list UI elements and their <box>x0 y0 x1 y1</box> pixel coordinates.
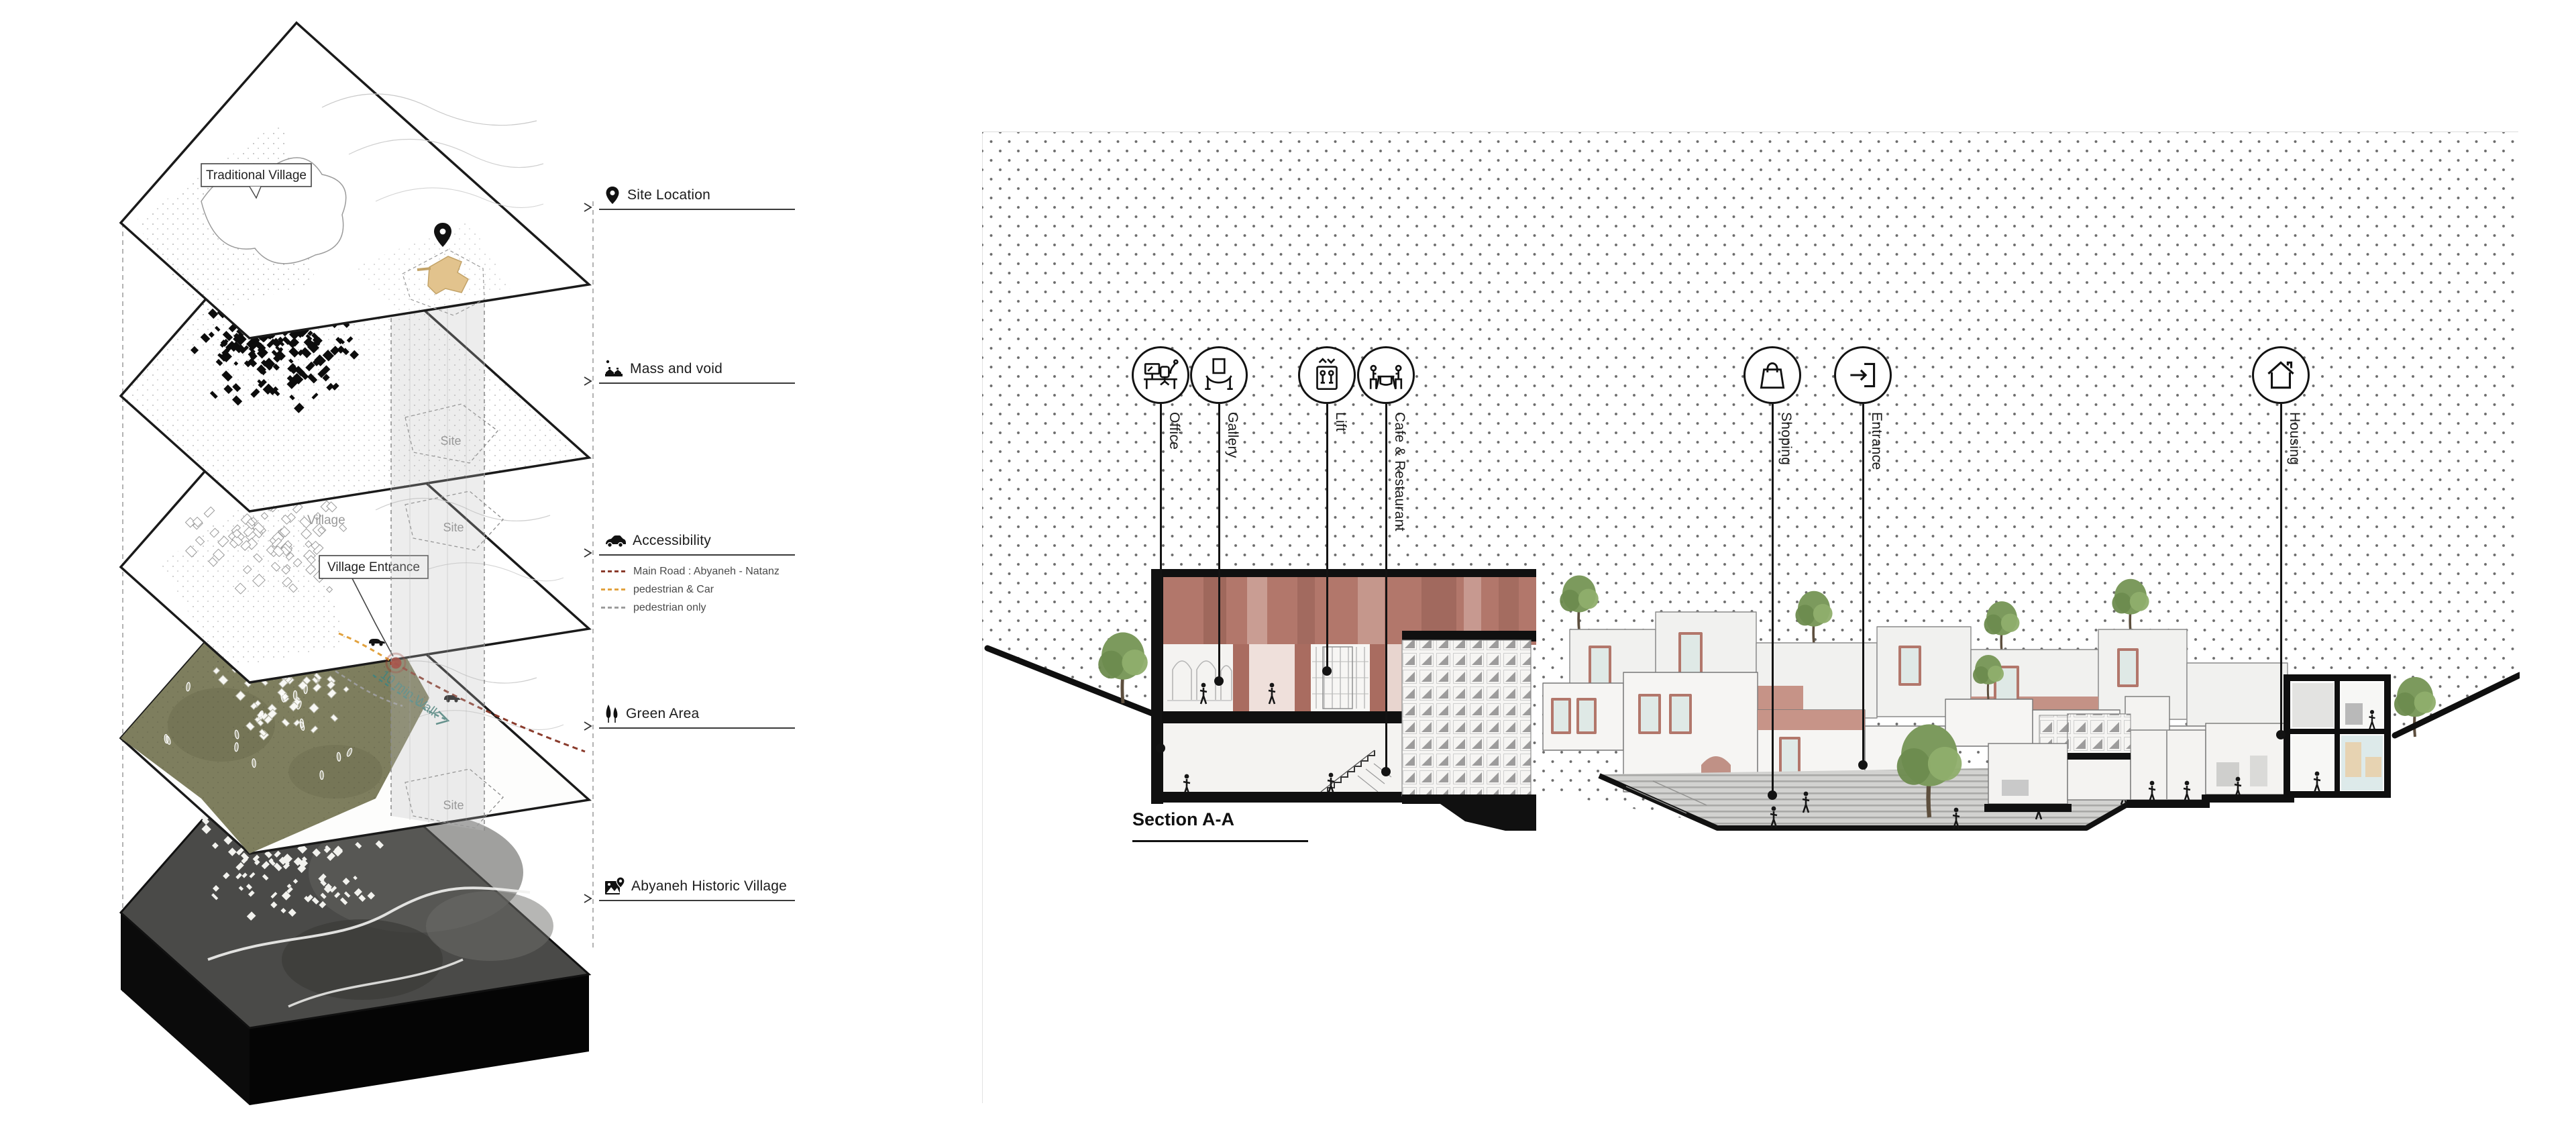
layer-label-accessibility: Accessibility Main Road : Abyaneh - Nata… <box>581 527 802 617</box>
cultural-building-section <box>1151 569 1536 831</box>
section-title: Section A-A <box>1132 809 1234 830</box>
callout-label-shopping: Shoping <box>1778 412 1794 465</box>
site-projection-shaft <box>391 289 484 831</box>
layer-label-text: Green Area <box>626 706 699 722</box>
layer-label-historic-village: Abyaneh Historic Village <box>581 873 802 901</box>
layer-label-mass-void: Mass and void <box>581 356 802 384</box>
legend-swatch <box>601 588 625 590</box>
callout-label-gallery: Gallery <box>1224 412 1240 458</box>
callout-line <box>1326 404 1328 671</box>
legend-item-main-road: Main Road : Abyaneh - Natanz <box>601 562 802 580</box>
callout-line <box>1862 404 1864 765</box>
callout-shopping <box>1743 346 1801 404</box>
chevron-right-icon <box>582 893 593 904</box>
label-underline <box>599 554 795 556</box>
layer-label-green-area: Green Area <box>581 701 802 729</box>
callout-dot <box>1858 760 1868 770</box>
legend-swatch <box>601 607 625 609</box>
chevron-right-icon <box>582 548 593 558</box>
callout-dot <box>1214 676 1224 686</box>
entrance-door-icon <box>1843 356 1882 395</box>
chevron-right-icon <box>582 376 593 387</box>
layer-label-site-location: Site Location <box>581 182 802 210</box>
building-section-drawing <box>982 132 2520 856</box>
label-underline <box>599 900 795 901</box>
buildings-icon <box>604 359 624 379</box>
callout-lift <box>1298 346 1356 404</box>
cafe-restaurant-icon <box>1366 356 1405 395</box>
chevron-right-icon <box>582 721 593 731</box>
callout-entrance <box>1834 346 1892 404</box>
legend-swatch <box>601 570 625 572</box>
presentation-board: Site Village Village Entrance 10 min Wal… <box>0 0 2576 1130</box>
accessibility-legend: Main Road : Abyaneh - Natanz pedestrian … <box>601 562 802 617</box>
callout-line <box>2280 404 2282 735</box>
layer-site-location: Traditional Village <box>121 23 589 338</box>
village-label: Village <box>307 513 345 527</box>
map-photo-icon <box>604 876 625 897</box>
callout-label-lift: Lift <box>1332 412 1348 431</box>
lift-icon <box>1307 356 1346 395</box>
house-icon <box>2261 356 2300 395</box>
label-underline <box>599 209 795 210</box>
car-icon <box>604 532 627 550</box>
layer-label-text: Abyaneh Historic Village <box>631 878 787 894</box>
exploded-axon-diagram: Site Village Village Entrance 10 min Wal… <box>0 0 979 1130</box>
callout-line <box>1772 404 1774 795</box>
callout-label-entrance: Entrance <box>1868 412 1884 470</box>
callout-office <box>1132 346 1189 404</box>
callout-housing <box>2252 346 2310 404</box>
shopping-bag-icon <box>1753 356 1792 395</box>
layer-label-text: Mass and void <box>630 361 722 377</box>
section-title-underline <box>1132 840 1308 842</box>
gallery-icon <box>1199 356 1238 395</box>
layer-label-text: Site Location <box>627 187 710 203</box>
label-underline <box>599 727 795 729</box>
legend-item-pedestrian-only: pedestrian only <box>601 599 802 617</box>
callout-dot <box>1381 767 1391 776</box>
callout-gallery <box>1190 346 1248 404</box>
callout-label-cafe-restaurant: Cafe & Restaurant <box>1391 412 1407 531</box>
callout-cafe-restaurant <box>1357 346 1415 404</box>
label-underline <box>599 382 795 384</box>
callout-dot <box>1156 743 1165 753</box>
office-desk-icon <box>1141 356 1180 395</box>
callout-dot <box>2276 730 2286 739</box>
chevron-right-icon <box>582 202 593 213</box>
trees-icon <box>604 703 620 725</box>
callout-line <box>1385 404 1387 772</box>
traditional-village-label: Traditional Village <box>206 168 307 183</box>
layer-label-text: Accessibility <box>633 533 711 549</box>
callout-line <box>1218 404 1220 681</box>
callout-dot <box>1768 790 1777 800</box>
legend-item-pedestrian-car: pedestrian & Car <box>601 580 802 599</box>
callout-line <box>1160 404 1162 748</box>
perforated-screen <box>1402 640 1531 796</box>
callout-label-housing: Housing <box>2286 412 2302 465</box>
map-pin-icon <box>604 185 621 205</box>
callout-dot <box>1322 666 1332 676</box>
callout-label-office: Office <box>1166 412 1182 450</box>
